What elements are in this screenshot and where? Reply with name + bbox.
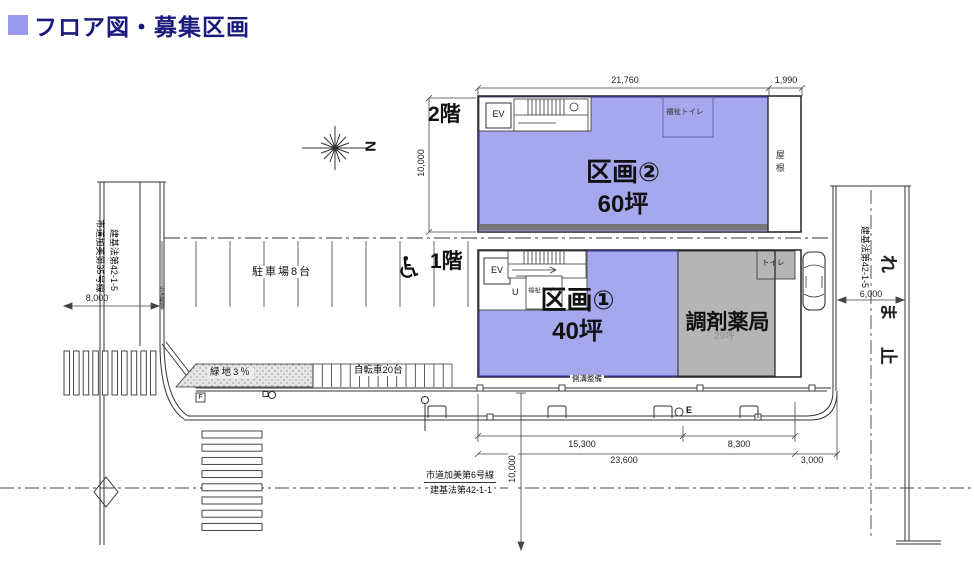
road-right-width: 6,000 (848, 290, 894, 300)
unit1-name: 区画① (490, 286, 665, 315)
elevator-1f-label: EV (484, 266, 510, 276)
parking-label: 駐車場8台 (250, 266, 314, 278)
north-label: N (361, 141, 378, 152)
utility-pole-e-icon (675, 408, 683, 416)
crosswalk-bottom (202, 431, 262, 530)
north-arrow-icon (302, 126, 366, 170)
utility-pole-icons (263, 392, 429, 432)
f-marker-label: F (196, 394, 205, 402)
left-road (64, 182, 188, 545)
bicycle-label: 自転車20台 (352, 366, 405, 376)
dim-2f-height: 10,000 (417, 137, 427, 189)
right-road (830, 186, 941, 544)
car-icon (803, 252, 825, 310)
road-marking-char-1: れ (877, 255, 897, 273)
roof-label: 屋根 (774, 150, 784, 176)
green-label: 緑地3％ (208, 368, 254, 378)
crosswalk-left (64, 351, 156, 395)
dim-frontage-right: 8,300 (705, 440, 773, 450)
road-marking-char-3: 止 (877, 347, 897, 365)
road-left-width: 8,000 (72, 294, 122, 304)
dim-side: 3,000 (788, 456, 836, 466)
elevator-2f-label: EV (486, 110, 511, 120)
dim-total: 23,600 (590, 456, 658, 466)
dim-2f-right: 1,990 (765, 76, 807, 86)
dim-frontage-left: 15,300 (548, 440, 616, 450)
pharmacy-size: 29坪 (714, 331, 735, 342)
road-bottom-width: 10,000 (508, 443, 518, 495)
gutter-note: 側溝整備 (570, 375, 604, 383)
diamond-road-marking (94, 477, 118, 507)
stairs-2f (514, 99, 588, 131)
page-header: フロア図・募集区画 (8, 8, 250, 42)
toilet2-label: トイレ (762, 259, 785, 267)
wheelchair-icon: ♿ (396, 252, 423, 285)
page-title: フロア図・募集区画 (34, 8, 250, 42)
sidewalk-note: 歩道整備 (157, 286, 164, 310)
floor-plan-page: フロア図・募集区画 N 2階 21,760 1,990 10,000 EV 福祉… (0, 0, 974, 571)
unit2-name: 区画② (538, 158, 708, 187)
toilet-2f-label: 福祉トイレ (666, 108, 704, 116)
pole-e-label: E (686, 406, 692, 416)
title-bullet-icon (8, 15, 28, 35)
road-marking-char-2: ま (877, 303, 897, 321)
unit1-size: 40坪 (490, 319, 665, 345)
floor2-label: 2階 (428, 103, 461, 126)
road-bottom-name: 市道加美第6号線 (424, 471, 496, 483)
floor1-label: 1階 (430, 250, 463, 273)
dim-2f-width: 21,760 (590, 76, 660, 86)
unit2-size: 60坪 (538, 192, 708, 218)
stairs-1f (508, 251, 586, 278)
road-bottom-law: 建基法第42-1-1 (428, 486, 494, 496)
